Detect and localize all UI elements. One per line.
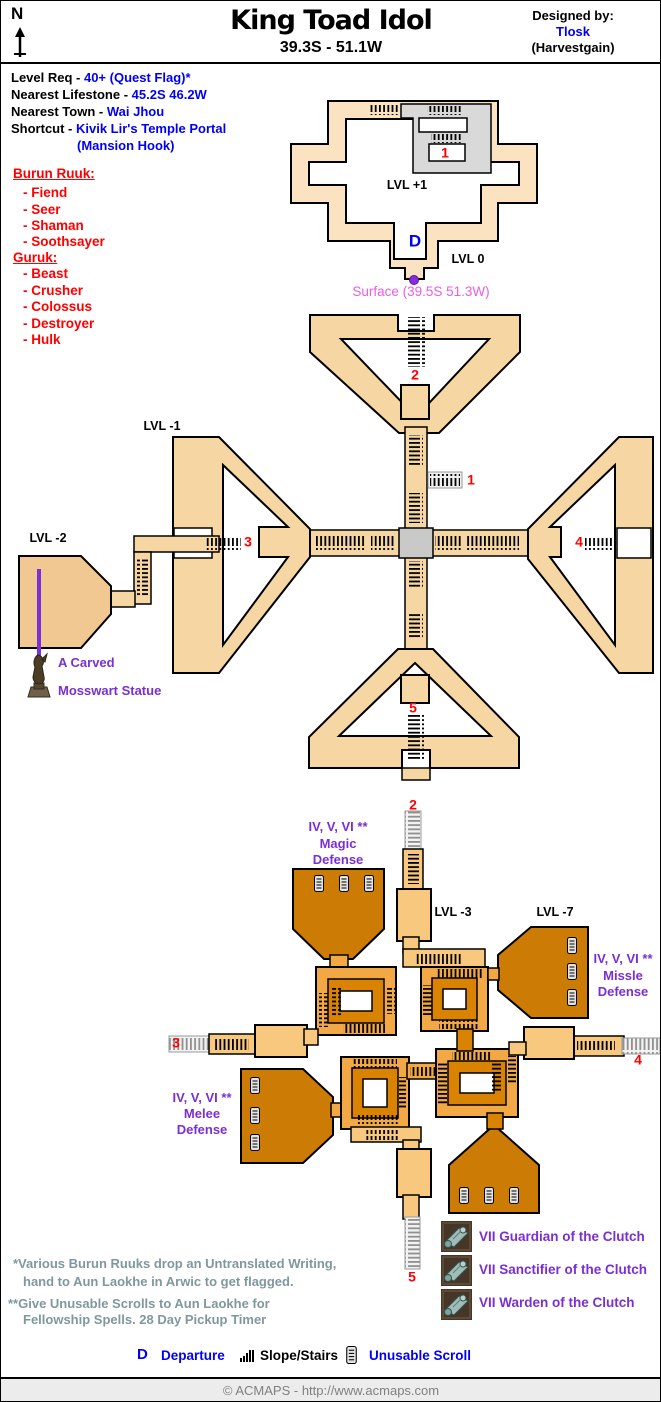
- statue-label-line1: A Carved: [58, 656, 115, 670]
- magic-defense-line1: IV, V, VI **: [308, 820, 367, 834]
- gray-stairs-2: [405, 811, 421, 851]
- info-label: Shortcut -: [11, 121, 76, 136]
- corridor: [304, 1029, 318, 1045]
- room-3: [255, 1025, 307, 1057]
- unusable-scroll-icon: [568, 990, 577, 1006]
- creature-item: - Hulk: [23, 333, 61, 348]
- missle-defense-line3: Defense: [598, 985, 649, 999]
- room-5: [397, 1149, 431, 1197]
- stairs-mark: [408, 713, 424, 759]
- stairs-mark: [399, 1077, 407, 1109]
- clutch-label: VII Warden of the Clutch: [479, 1296, 635, 1311]
- loop-3: [341, 1057, 409, 1129]
- loop-2: [421, 967, 488, 1031]
- footer-copyright: © ACMAPS - http://www.acmaps.com: [223, 1384, 439, 1398]
- stairs-mark: [319, 993, 328, 1027]
- unusable-scroll-icon: [568, 938, 577, 954]
- level-label-p1: LVL +1: [387, 179, 427, 193]
- magic-defense-line3: Defense: [313, 853, 364, 867]
- unusable-scroll-icon: [251, 1078, 260, 1094]
- loop-hole: [340, 991, 372, 1011]
- clutch-scroll-icon: [441, 1289, 472, 1320]
- info-line-level-req: Level Req - 40+ (Quest Flag)*: [11, 71, 191, 85]
- stairs-mark: [409, 493, 423, 523]
- clutch-label: VII Guardian of the Clutch: [479, 1230, 645, 1245]
- slope-stairs-icon: [240, 1350, 254, 1362]
- stairs-mark: [369, 105, 399, 115]
- corridor: [509, 1042, 526, 1055]
- lvl2-room: [19, 556, 111, 648]
- footnote-2-line1: **Give Unusable Scrolls to Aun Laokhe fo…: [8, 1297, 270, 1311]
- stairs-mark: [353, 1059, 397, 1068]
- designer-name: Tlosk: [556, 25, 590, 39]
- level-label-m7: LVL -7: [536, 906, 573, 920]
- clutch-scroll-icon: [441, 1221, 472, 1252]
- stairs-mark: [137, 558, 148, 596]
- stairs-mark: [371, 536, 395, 550]
- statue-icon: [28, 654, 50, 697]
- footnote-1-line2: hand to Aun Laokhe in Arwic to get flagg…: [23, 1275, 294, 1289]
- statue-label-line2: Mosswart Statue: [58, 684, 161, 698]
- north-arrow-icon: [14, 27, 26, 57]
- info-line-shortcut: Shortcut - Kivik Lir's Temple Portal: [11, 122, 226, 136]
- corridor: [487, 1113, 503, 1129]
- header-divider: [1, 62, 660, 64]
- creature-item: - Crusher: [23, 284, 83, 299]
- creature-item: - Destroyer: [23, 317, 94, 332]
- stairs-mark: [452, 1051, 492, 1060]
- marker-5: 5: [409, 700, 417, 715]
- loop-hole: [460, 1073, 494, 1093]
- middle-map: [19, 315, 653, 780]
- stairs-mark: [407, 317, 425, 367]
- creature-item: - Soothsayer: [23, 235, 105, 250]
- east-slab-gap: [617, 528, 651, 558]
- footnote-2-line2: Fellowship Spells. 28 Day Pickup Timer: [23, 1313, 266, 1327]
- clutch-scroll-icon: [441, 1255, 472, 1286]
- corridor: [488, 968, 499, 980]
- stairs-mark: [577, 1041, 615, 1052]
- info-value: 45.2S 46.2W: [132, 87, 207, 102]
- cross-center: [399, 528, 433, 558]
- info-value: 40+ (Quest Flag)*: [84, 70, 191, 85]
- stairs-mark: [343, 1024, 385, 1033]
- spiral-slot: [419, 118, 467, 132]
- stairs-mark: [407, 854, 419, 884]
- unusable-scroll-icon: [485, 1188, 494, 1204]
- creature-item: - Fiend: [23, 186, 67, 201]
- magic-defense-line2: Magic: [320, 837, 357, 851]
- creature-item: - Colossus: [23, 300, 92, 315]
- stairs-mark: [439, 1020, 479, 1029]
- level-label-m1: LVL -1: [143, 420, 180, 434]
- footer-bar: © ACMAPS - http://www.acmaps.com: [1, 1377, 660, 1402]
- corridor: [403, 1195, 419, 1219]
- stairs-mark: [492, 1061, 501, 1091]
- info-line-lifestone: Nearest Lifestone - 45.2S 46.2W: [11, 88, 207, 102]
- stairs-mark: [365, 1130, 399, 1140]
- north-stub: [401, 385, 429, 419]
- stairs-mark: [409, 613, 423, 639]
- stairs-mark: [213, 1039, 249, 1050]
- burun-ruuk-title: Burun Ruuk:: [13, 167, 95, 182]
- unusable-scroll-icon: [460, 1188, 469, 1204]
- loop-4: [436, 1049, 518, 1117]
- page-coords: 39.3S - 51.1W: [280, 39, 382, 57]
- corridor: [457, 1029, 473, 1051]
- statue-pointer-line: [37, 569, 41, 657]
- departure-marker: D: [409, 233, 421, 252]
- marker-1: 1: [467, 472, 475, 487]
- info-shortcut-line2: (Mansion Hook): [77, 139, 175, 153]
- stairs-mark: [435, 536, 461, 550]
- room-4: [524, 1027, 574, 1059]
- clutch-label: VII Sanctifier of the Clutch: [479, 1263, 647, 1278]
- stairs-mark: [332, 987, 341, 1017]
- info-label: Nearest Town -: [11, 104, 107, 119]
- marker-3-lower: 3: [172, 1035, 180, 1050]
- north-label: N: [11, 5, 23, 24]
- marker-3: 3: [244, 534, 252, 549]
- unusable-scroll-icon: [365, 876, 374, 892]
- unusable-scroll-icon: [315, 876, 324, 892]
- stairs-mark: [205, 538, 241, 550]
- melee-defense-line3: Defense: [177, 1123, 228, 1137]
- missle-defense-line2: Missle: [603, 969, 643, 983]
- stairs-mark: [431, 134, 461, 143]
- stairs-mark: [585, 538, 617, 550]
- level-label-m3: LVL -3: [434, 906, 471, 920]
- unusable-scroll-icon: [340, 876, 349, 892]
- south-stem: [402, 768, 430, 780]
- stairs-mark: [358, 1115, 398, 1124]
- level-label-0: LVL 0: [452, 253, 485, 267]
- page-title: King Toad Idol: [230, 6, 432, 36]
- missle-defense-line1: IV, V, VI **: [593, 952, 652, 966]
- marker-4-lower: 4: [634, 1052, 642, 1067]
- marker-4: 4: [575, 534, 583, 549]
- creature-item: - Seer: [23, 203, 61, 218]
- unusable-scroll-icon: [510, 1188, 519, 1204]
- stairs-mark: [465, 536, 519, 550]
- creature-item: - Beast: [23, 267, 68, 282]
- footnote-1-line1: *Various Burun Ruuks drop an Untranslate…: [13, 1257, 336, 1271]
- info-value: Wai Jhou: [107, 104, 164, 119]
- marker-5-lower: 5: [408, 1269, 416, 1284]
- unusable-scroll-icon: [568, 964, 577, 980]
- loop-1: [316, 967, 396, 1035]
- stairs-mark: [427, 106, 461, 115]
- stairs-mark: [423, 985, 432, 1015]
- info-label: Nearest Lifestone -: [11, 87, 132, 102]
- stairs-mark: [409, 435, 423, 465]
- legend-departure-symbol: D: [137, 1347, 148, 1364]
- surface-label: Surface (39.5S 51.3W): [352, 285, 489, 300]
- info-label: Level Req -: [11, 70, 84, 85]
- creature-item: - Shaman: [23, 219, 84, 234]
- guruk-title: Guruk:: [13, 251, 57, 266]
- stairs-mark: [430, 474, 460, 486]
- dungeon-map: [1, 1, 660, 1401]
- designed-by-label: Designed by:: [532, 9, 614, 23]
- legend-departure-label: Departure: [161, 1349, 225, 1364]
- stairs-mark: [315, 536, 365, 550]
- unusable-scroll-icon: [251, 1135, 260, 1151]
- stairs-mark: [409, 561, 423, 589]
- stairs-mark: [437, 969, 483, 978]
- legend-scroll-label: Unusable Scroll: [369, 1349, 471, 1364]
- info-value: Kivik Lir's Temple Portal: [76, 121, 226, 136]
- lower-map: [169, 811, 660, 1269]
- gray-stairs-5: [405, 1217, 420, 1269]
- unusable-scroll-legend-icon: [347, 1347, 357, 1364]
- stairs-mark: [508, 1056, 516, 1084]
- stairs-mark: [438, 1063, 447, 1105]
- map-page: N King Toad Idol 39.3S - 51.1W Designed …: [0, 0, 661, 1402]
- stairs-mark: [387, 986, 395, 1014]
- marker-2: 2: [411, 367, 419, 382]
- lvl3-room: [397, 889, 431, 941]
- melee-defense-line2: Melee: [184, 1107, 220, 1121]
- stairs-mark: [410, 1067, 435, 1076]
- marker-1-top: 1: [441, 145, 449, 160]
- info-line-town: Nearest Town - Wai Jhou: [11, 105, 164, 119]
- legend-stairs-label: Slope/Stairs: [260, 1349, 338, 1364]
- loop-hole: [443, 989, 466, 1009]
- level-label-m2: LVL -2: [29, 532, 66, 546]
- loop-hole: [363, 1079, 387, 1107]
- designer-guild: (Harvestgain): [531, 41, 614, 55]
- stairs-mark: [415, 952, 463, 964]
- unusable-scroll-icon: [251, 1108, 260, 1124]
- melee-defense-line1: IV, V, VI **: [172, 1091, 231, 1105]
- marker-2-lower: 2: [409, 797, 417, 812]
